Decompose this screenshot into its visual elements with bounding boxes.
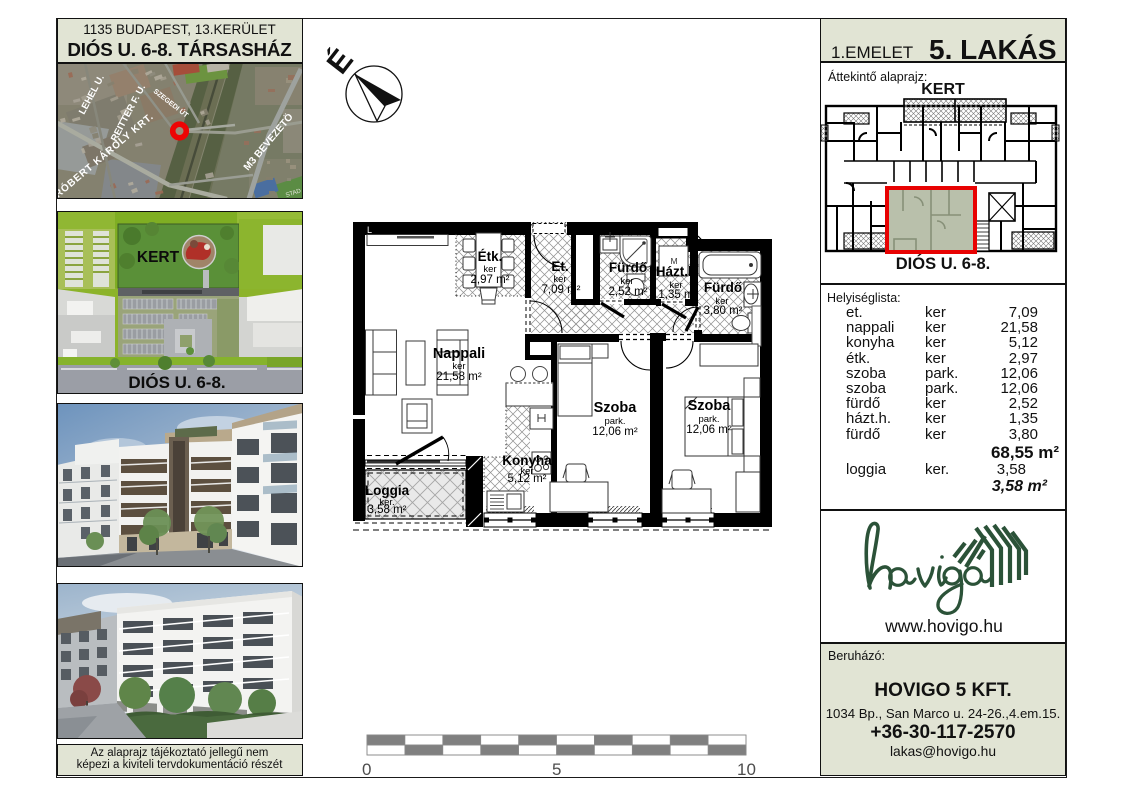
svg-text:5: 5 (552, 760, 561, 779)
svg-text:12,06 m²: 12,06 m² (686, 424, 732, 436)
svg-text:Szoba: Szoba (688, 398, 732, 414)
svg-text:Fürdő: Fürdő (609, 260, 647, 275)
svg-text:www.hovigo.hu: www.hovigo.hu (884, 616, 1003, 636)
svg-text:3,80 m²: 3,80 m² (704, 305, 743, 317)
svg-text:L: L (367, 225, 372, 235)
svg-text:DIÓS U. 6-8.: DIÓS U. 6-8. (128, 373, 225, 392)
svg-text:21,58 m²: 21,58 m² (436, 371, 482, 383)
svg-text:5,12 m²: 5,12 m² (508, 473, 547, 485)
svg-text:Loggia: Loggia (365, 483, 410, 498)
svg-text:KERT: KERT (136, 249, 179, 266)
svg-text:1,35 m: 1,35 m (658, 289, 693, 301)
svg-text:7,09 m²: 7,09 m² (542, 284, 581, 296)
svg-text:0: 0 (362, 760, 371, 779)
svg-text:Nappali: Nappali (433, 346, 485, 362)
svg-text:10: 10 (737, 760, 756, 779)
svg-text:M: M (670, 256, 677, 266)
svg-text:12,06 m²: 12,06 m² (592, 426, 638, 438)
svg-text:Házt.h: Házt.h (656, 264, 697, 279)
svg-text:3,58 m²: 3,58 m² (368, 504, 407, 516)
svg-text:2,52 m²: 2,52 m² (609, 286, 648, 298)
svg-text:Fürdő: Fürdő (704, 280, 742, 295)
svg-text:Étk.: Étk. (478, 249, 503, 264)
svg-text:Szoba: Szoba (594, 400, 638, 416)
svg-text:Et.: Et. (551, 259, 568, 274)
svg-text:2,97 m²: 2,97 m² (471, 274, 510, 286)
